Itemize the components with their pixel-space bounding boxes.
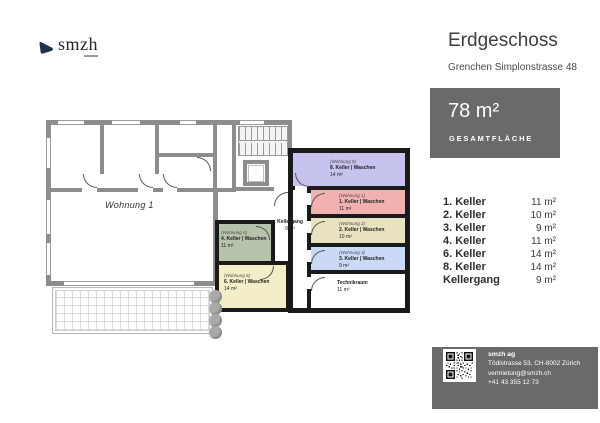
qr-code [443,349,476,382]
door-arc [274,192,288,206]
room-list: 1. Keller11 m² 2. Keller10 m² 3. Keller9… [443,196,556,287]
contact-company: smzh ag [488,350,580,359]
room-list-row: 3. Keller9 m² [443,222,556,235]
elevator [243,160,269,186]
window [112,120,140,125]
room-list-row: 1. Keller11 m² [443,196,556,209]
wall [288,120,292,150]
door-arc [139,174,153,188]
total-area-label: GESAMTFLÄCHE [449,134,533,143]
room-list-row: 8. Keller14 m² [443,261,556,274]
wall [157,153,213,157]
door-arc [163,174,177,188]
window [46,138,51,168]
logo-tagline-bar [84,55,98,57]
wall [155,125,159,174]
contact-phone: +41 43 355 12 73 [488,378,580,387]
room-label-keller2: (Wohnung 2) 2. Keller | Waschen 10 m² [339,221,384,241]
wall [232,125,236,189]
terrace [52,287,213,334]
room-label-technik: Technikraum 11 m² [337,280,368,294]
logo-text: smzh [58,34,98,55]
page-title: Erdgeschoss [448,30,558,52]
door-arc [83,174,97,188]
wall [213,125,217,188]
contact-box: smzh ag Tödistrasse 53, CH-8002 Zürich v… [432,347,598,409]
bush [209,326,222,339]
window [46,200,51,234]
room-label-keller1: (Wohnung 1) 1. Keller | Waschen 11 m² [339,193,384,213]
window [46,243,51,275]
contact-address: Tödistrasse 53, CH-8002 Zürich [488,359,580,368]
page-subtitle: Grenchen Simplonstrasse 48 [448,62,577,73]
room-label-kellergang: Kellergang 9 m² [268,219,312,233]
wall [177,188,236,192]
room-label-keller4: (Wohnung 5) 4. Keller | Waschen 11 m² [221,230,266,250]
total-area-box: 78 m² GESAMTFLÄCHE [430,88,560,158]
window [64,281,194,286]
window [180,120,196,125]
apartment-label: Wohnung 1 [105,200,154,210]
wall [153,188,163,192]
room-label-keller8: (Wohnung 8) 8. Keller | Waschen 14 m² [330,159,375,179]
contact-email: vermietung@smzh.ch [488,369,580,378]
door-arc [197,157,211,171]
room-list-row: 4. Keller11 m² [443,235,556,248]
total-area-value: 78 m² [448,100,499,123]
window [58,120,84,125]
room-label-keller3: (Wohnung 3) 3. Keller | Waschen 9 m² [339,250,384,270]
window [240,120,264,125]
room-list-row: Kellergang9 m² [443,274,556,287]
room-label-keller6: (Wohnung 6) 6. Keller | Waschen 14 m² [224,273,269,293]
wall [46,188,82,192]
room-list-row: 6. Keller14 m² [443,248,556,261]
wall [311,270,405,274]
wall [97,188,138,192]
room-list-row: 2. Keller10 m² [443,209,556,222]
wall [232,187,274,191]
wall [100,125,104,174]
floorplan-sheet: smzh [0,0,600,423]
staircase [238,126,288,156]
contact-text: smzh ag Tödistrasse 53, CH-8002 Zürich v… [488,350,580,388]
smzh-logo-icon [38,38,54,56]
